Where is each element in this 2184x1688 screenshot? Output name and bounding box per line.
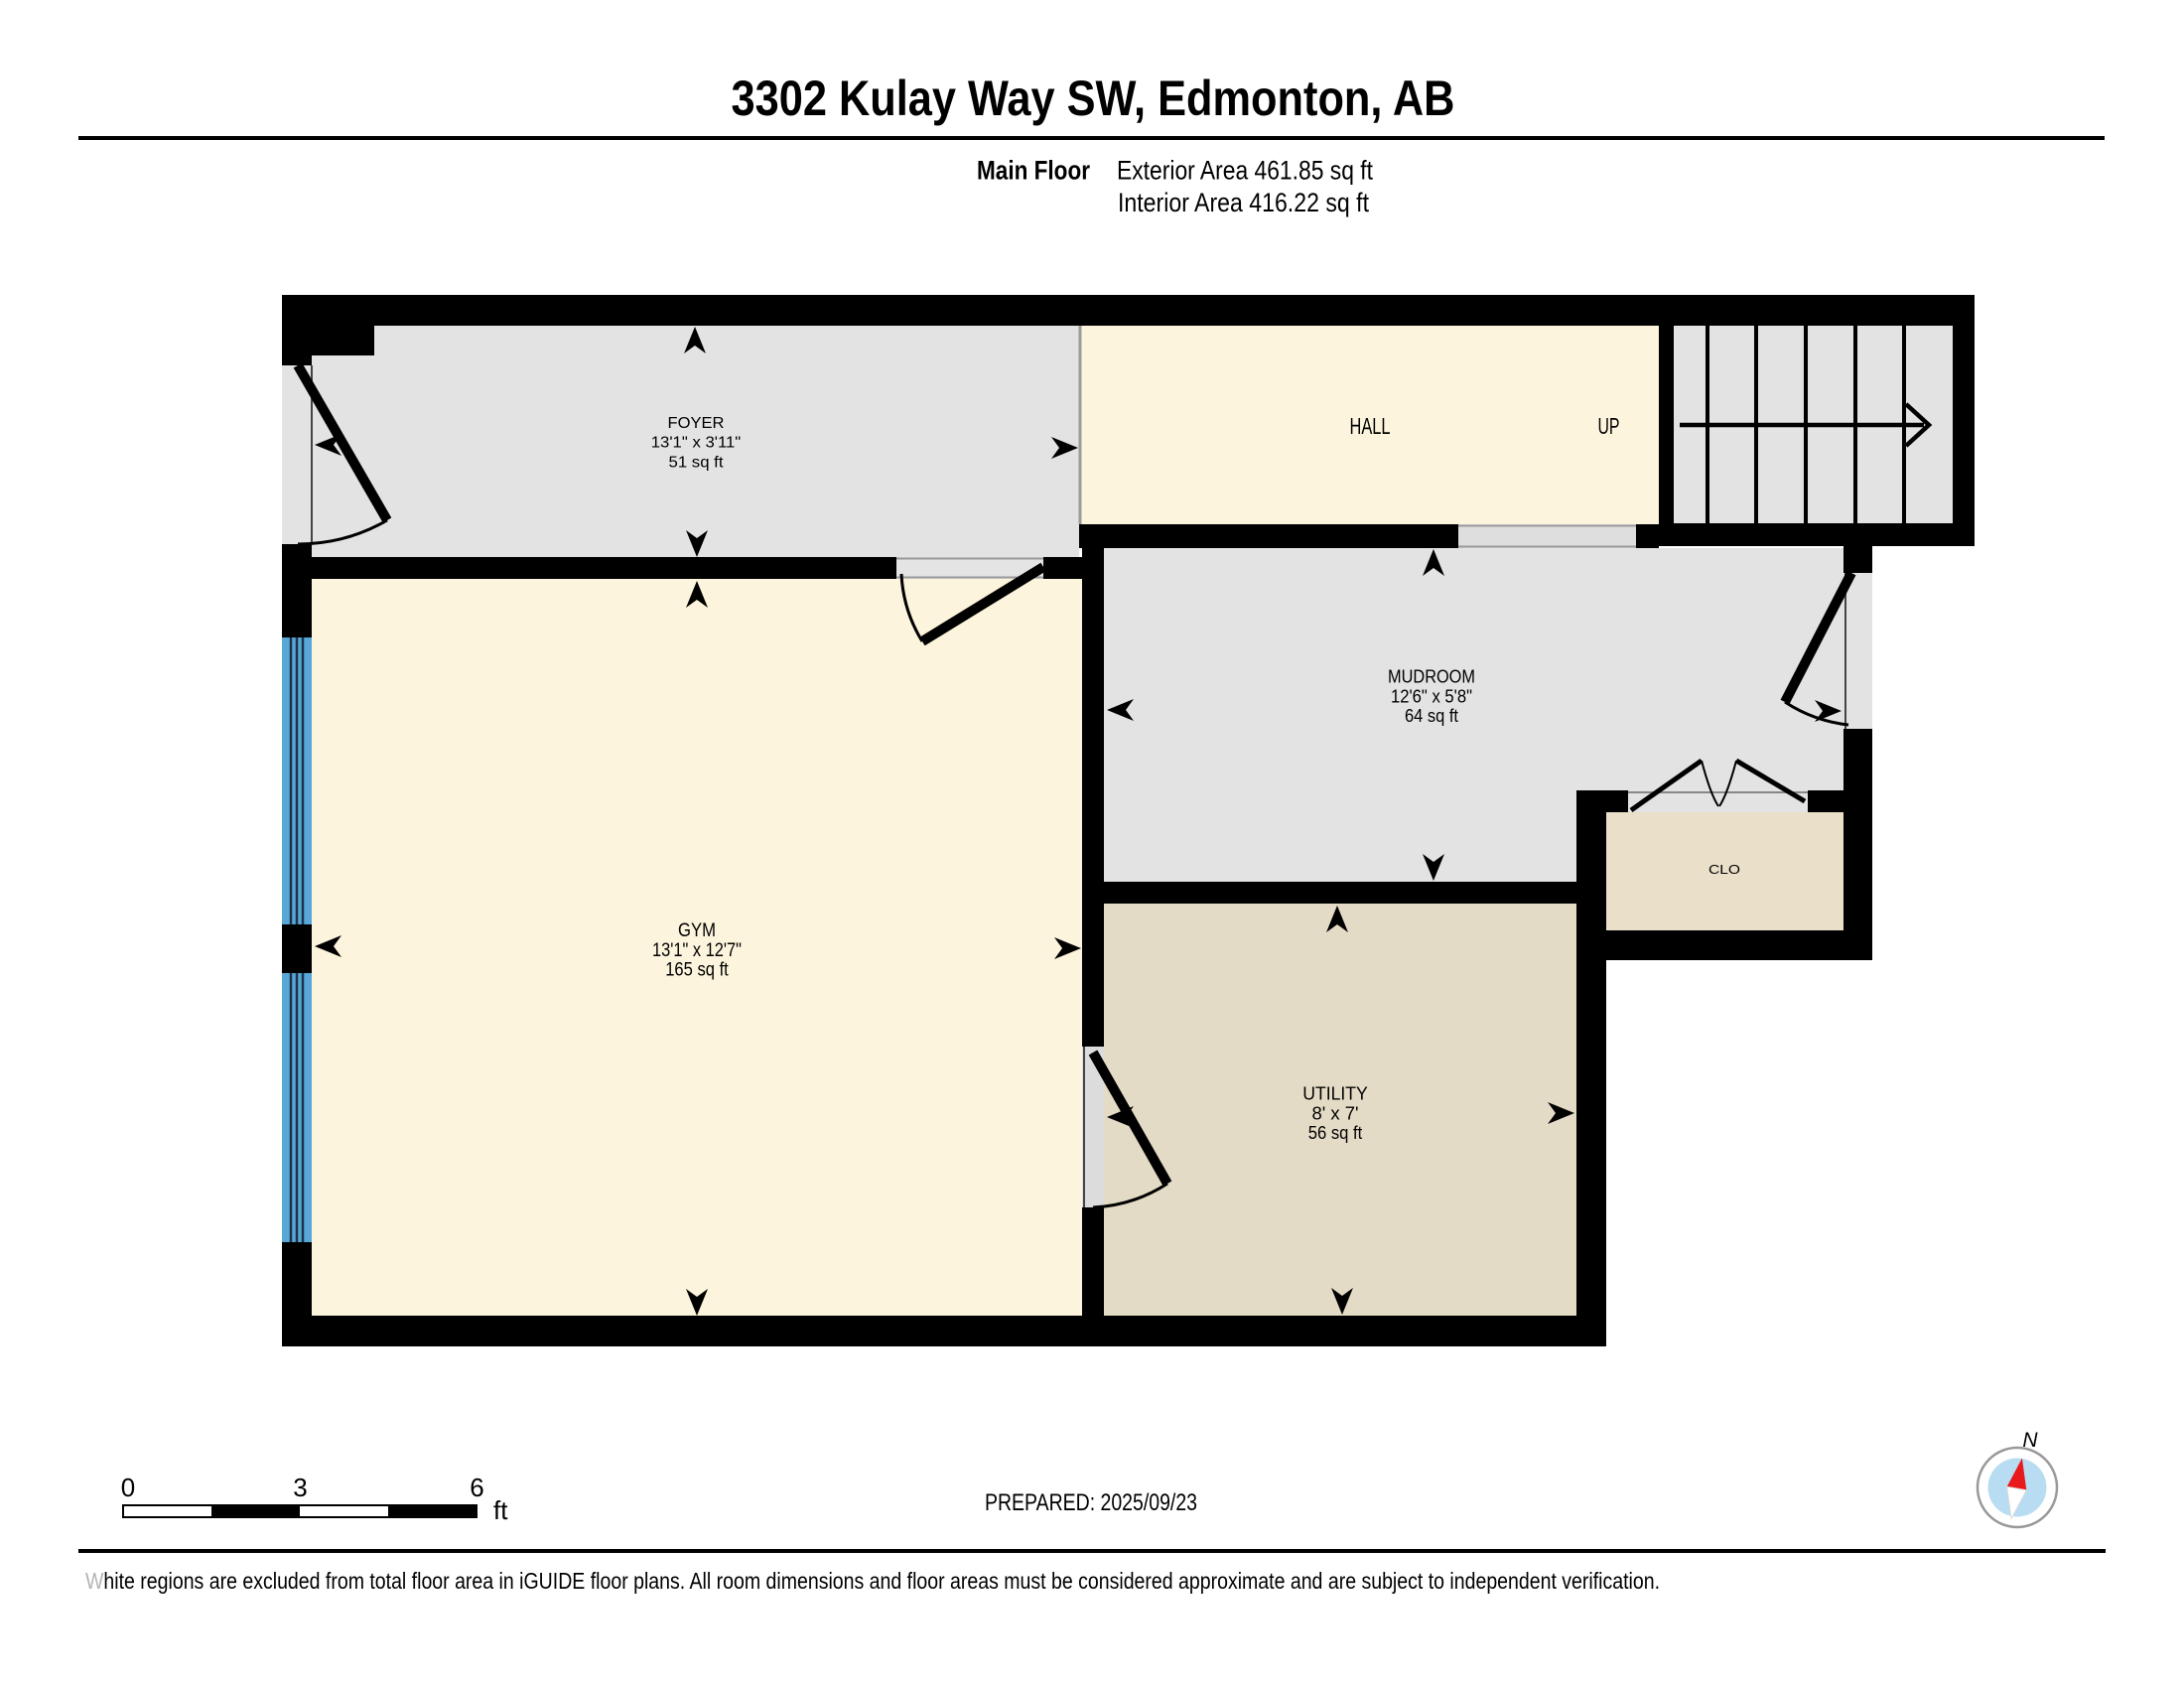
svg-text:64 sq ft: 64 sq ft [1405, 706, 1458, 726]
svg-text:HALL: HALL [1350, 413, 1391, 439]
svg-text:FOYER: FOYER [668, 415, 725, 432]
svg-text:165 sq ft: 165 sq ft [665, 960, 729, 981]
svg-text:13'1" x 3'11": 13'1" x 3'11" [651, 435, 742, 452]
svg-text:MUDROOM: MUDROOM [1388, 667, 1475, 687]
svg-text:8' x 7': 8' x 7' [1312, 1102, 1359, 1123]
svg-text:51 sq ft: 51 sq ft [669, 454, 725, 471]
svg-text:Exterior Area 461.85 sq ft: Exterior Area 461.85 sq ft [1117, 156, 1373, 186]
svg-text:UP: UP [1598, 413, 1620, 439]
svg-text:White regions are excluded fro: White regions are excluded from total fl… [85, 1568, 1660, 1594]
svg-text:CLO: CLO [1708, 863, 1740, 877]
svg-text:56 sq ft: 56 sq ft [1308, 1122, 1363, 1143]
svg-text:Main Floor: Main Floor [977, 156, 1090, 186]
svg-text:Interior Area 416.22 sq ft: Interior Area 416.22 sq ft [1118, 188, 1369, 217]
svg-text:6: 6 [470, 1473, 483, 1502]
svg-text:PREPARED: 2025/09/23: PREPARED: 2025/09/23 [985, 1489, 1197, 1516]
svg-text:13'1" x 12'7": 13'1" x 12'7" [652, 940, 742, 961]
svg-text:12'6" x 5'8": 12'6" x 5'8" [1391, 686, 1472, 706]
svg-text:GYM: GYM [678, 920, 716, 941]
svg-text:3302 Kulay Way SW, Edmonton, A: 3302 Kulay Way SW, Edmonton, AB [732, 70, 1455, 126]
svg-text:N: N [2022, 1429, 2038, 1452]
svg-text:0: 0 [121, 1473, 135, 1502]
svg-text:3: 3 [293, 1473, 307, 1502]
svg-text:UTILITY: UTILITY [1302, 1083, 1368, 1104]
svg-text:ft: ft [493, 1495, 508, 1525]
